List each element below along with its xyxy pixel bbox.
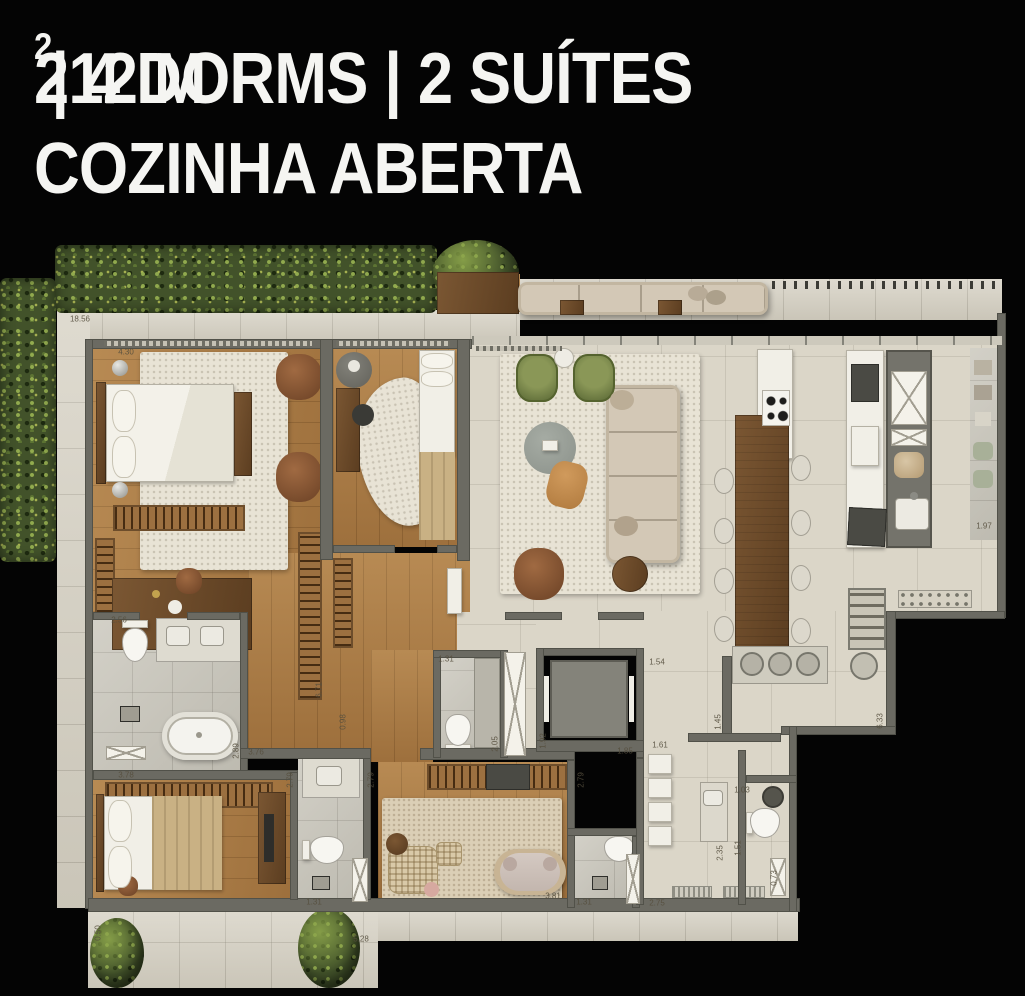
vanity-sink — [200, 626, 224, 646]
daybed-pillow — [503, 857, 517, 871]
round-basin — [768, 652, 792, 676]
dimension-label: 18.56 — [70, 315, 90, 324]
pantry-jar — [973, 470, 993, 488]
wall — [88, 898, 800, 912]
faucet — [910, 492, 918, 500]
wall — [187, 612, 240, 620]
armchair-brown — [276, 354, 322, 400]
wall — [598, 612, 644, 620]
wall — [85, 339, 93, 909]
shower-door — [352, 858, 368, 902]
bed-headboard — [96, 794, 104, 892]
outdoor-side-table — [658, 300, 682, 315]
dining-table — [735, 415, 789, 661]
pink-stool — [424, 882, 439, 897]
dimension-label: 2.79 — [286, 772, 295, 788]
dimension-label: 1.31 — [306, 898, 322, 907]
laundry-shelf-box — [648, 802, 672, 822]
wall — [290, 772, 298, 900]
floor-grate — [672, 886, 712, 898]
closet-shelf — [298, 532, 322, 700]
vanity-sink — [316, 766, 342, 786]
tub-drain — [196, 732, 202, 738]
laundry-shelf-box — [648, 754, 672, 774]
dining-chair — [714, 518, 734, 544]
tree-planter — [437, 272, 519, 314]
floor-drain — [312, 876, 330, 890]
tv-screen — [264, 814, 274, 862]
shower-drain — [120, 706, 140, 722]
dimension-label: 3.76 — [248, 748, 264, 757]
bathroom-door — [106, 746, 146, 760]
sphere-lamp — [112, 360, 128, 376]
prep-sink — [850, 652, 878, 680]
dimension-label: 3.78 — [118, 771, 134, 780]
outdoor-pillow — [688, 286, 708, 301]
oven-cabinet — [891, 429, 927, 446]
armchair-green — [516, 354, 558, 402]
wall — [505, 612, 562, 620]
floor-drain — [592, 876, 608, 890]
wall — [433, 650, 441, 758]
pillow — [421, 371, 453, 387]
office-desk — [336, 388, 360, 472]
daybed-pillow — [543, 857, 557, 871]
elevator-door — [629, 676, 634, 722]
dimension-label: 3.81 — [545, 892, 561, 901]
window-curtain — [336, 341, 450, 346]
wall — [738, 750, 746, 905]
bed-blanket — [152, 796, 222, 890]
armchair-brown — [276, 452, 322, 502]
dimension-label: 1.03 — [734, 786, 750, 795]
pantry-item — [975, 412, 991, 426]
hedge-top — [55, 245, 437, 313]
dimension-label: 1.31 — [438, 655, 454, 664]
floor-plan-page: 212 M2 | 4 DORMS | 2 SUÍTES COZINHA ABER… — [0, 0, 1025, 996]
elevator-cab — [550, 660, 628, 738]
bed-blanket — [419, 452, 455, 540]
laundry-shelf-box — [648, 826, 672, 846]
pillow — [421, 353, 453, 369]
fridge-cabinet — [891, 371, 927, 425]
desk-tray — [152, 590, 160, 598]
corridor-floor — [371, 650, 433, 762]
dining-chair — [791, 510, 811, 536]
dimension-label: 4.30 — [118, 348, 134, 357]
dimension-label: 6.33 — [876, 713, 885, 729]
living-sofa — [606, 385, 680, 563]
kitchen-sink — [895, 498, 929, 530]
dimension-label: 0.98 — [339, 714, 348, 730]
dimension-label: 5.28 — [353, 935, 369, 944]
dimension-label: 6.71 — [315, 682, 324, 698]
dimension-label: 2.75 — [649, 899, 665, 908]
dimension-label: 2.79 — [367, 772, 376, 788]
potted-plant — [298, 908, 360, 988]
outdoor-sofa — [518, 282, 768, 315]
office-chair — [352, 404, 374, 426]
side-table — [554, 348, 574, 368]
table-book — [542, 440, 558, 451]
dining-chair — [714, 468, 734, 494]
cooktop — [762, 390, 790, 426]
sphere-lamp — [112, 482, 128, 498]
window-mullions — [472, 336, 1002, 345]
lavabo-basin — [762, 786, 784, 808]
shower-door — [626, 854, 640, 904]
coffee-machine — [851, 364, 879, 402]
rattan-ottoman — [436, 842, 462, 866]
dimension-label: 2.35 — [716, 845, 725, 861]
sofa-pillow — [614, 516, 638, 536]
dimension-label: 1.61 — [652, 741, 668, 750]
dining-chair — [714, 616, 734, 642]
shower-column — [474, 658, 500, 748]
wardrobe — [113, 505, 245, 531]
laundry-shelf-box — [648, 778, 672, 798]
wall — [457, 339, 470, 561]
bathroom-door — [504, 652, 526, 756]
toilet-tank — [302, 840, 310, 860]
swivel-chair — [514, 548, 564, 600]
dishwasher — [847, 507, 887, 547]
sofa-pillow — [610, 390, 634, 410]
round-basin — [740, 652, 764, 676]
dimension-label: 2.05 — [491, 736, 500, 752]
wall — [886, 611, 896, 735]
ac-panel — [447, 568, 462, 614]
dining-chair — [791, 618, 811, 644]
outdoor-pillow — [706, 290, 726, 305]
wall — [333, 545, 395, 553]
wall — [789, 726, 797, 912]
pantry-item — [974, 385, 992, 400]
dining-chair — [791, 455, 811, 481]
window-curtain — [104, 341, 312, 346]
wall — [997, 313, 1006, 618]
dining-chair — [791, 565, 811, 591]
bread-box — [894, 452, 924, 478]
pillow — [108, 800, 132, 842]
dining-chair — [714, 568, 734, 594]
dimension-label: 1.97 — [976, 522, 992, 531]
elevator-door — [544, 676, 549, 722]
dimension-label: 0.73 — [770, 870, 779, 886]
balcony-edge — [772, 281, 1000, 289]
bed-headboard — [96, 382, 106, 484]
armchair-green — [573, 354, 615, 402]
pillow — [112, 390, 136, 432]
wine-rack — [848, 588, 886, 650]
dimension-label: 0.50 — [94, 925, 103, 941]
wall — [746, 775, 797, 783]
cutting-board — [851, 426, 879, 466]
wall — [320, 339, 333, 560]
dimension-label: 2.89 — [232, 743, 241, 759]
pillow — [108, 846, 132, 888]
tv-console — [486, 764, 530, 790]
hedge-left — [0, 278, 56, 562]
round-side-table — [612, 556, 648, 592]
side-table — [386, 833, 408, 855]
round-basin — [796, 652, 820, 676]
dimension-label: 1.31 — [576, 898, 592, 907]
pantry-item — [974, 360, 992, 375]
wall — [536, 648, 644, 656]
wall — [722, 656, 732, 736]
spice-shelf — [898, 590, 972, 608]
pillow — [112, 436, 136, 478]
wall — [567, 828, 640, 836]
wall — [688, 733, 781, 742]
wall — [437, 545, 457, 553]
window-curtain — [476, 346, 562, 351]
dimension-label: 1.51 — [734, 840, 743, 856]
outdoor-side-table — [560, 300, 584, 315]
desk-dish — [168, 600, 182, 614]
dimension-label: 1.54 — [649, 658, 665, 667]
bed-bench — [234, 392, 252, 476]
vanity-sink — [166, 626, 190, 646]
table-plate — [348, 360, 360, 372]
dimension-label: 1.92 — [539, 733, 548, 749]
wall — [886, 611, 1005, 619]
dimension-label: 2.56 — [111, 616, 127, 625]
dimension-label: 1.85 — [617, 747, 633, 756]
desk-stool — [176, 568, 202, 594]
dimension-label: 2.79 — [577, 772, 586, 788]
dimension-label: 1.45 — [714, 714, 723, 730]
laundry-sink — [703, 790, 723, 806]
closet-shelf — [333, 558, 353, 648]
pantry-jar — [973, 442, 993, 460]
